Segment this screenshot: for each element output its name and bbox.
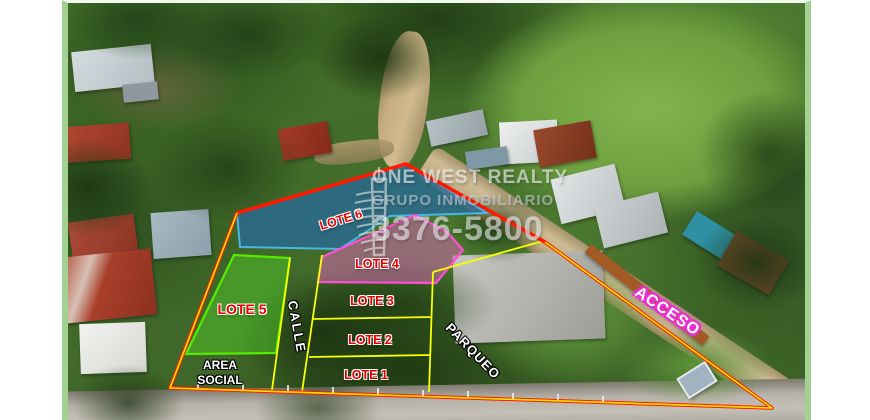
- lot-overlay: [68, 3, 805, 420]
- label-area-social-line1: AREA: [203, 359, 237, 371]
- label-area-social-line2: SOCIAL: [197, 374, 242, 386]
- label-lote-5: LOTE 5: [217, 302, 266, 316]
- label-lote-2: LOTE 2: [348, 334, 392, 347]
- label-lote-1: LOTE 1: [344, 369, 388, 382]
- label-lote-3: LOTE 3: [350, 295, 394, 308]
- aerial-photo: LOTE 6 LOTE 5 LOTE 4 LOTE 3 LOTE 2 LOTE …: [62, 0, 811, 420]
- listing-image-frame: LOTE 6 LOTE 5 LOTE 4 LOTE 3 LOTE 2 LOTE …: [0, 0, 870, 420]
- label-lote-4: LOTE 4: [355, 258, 399, 271]
